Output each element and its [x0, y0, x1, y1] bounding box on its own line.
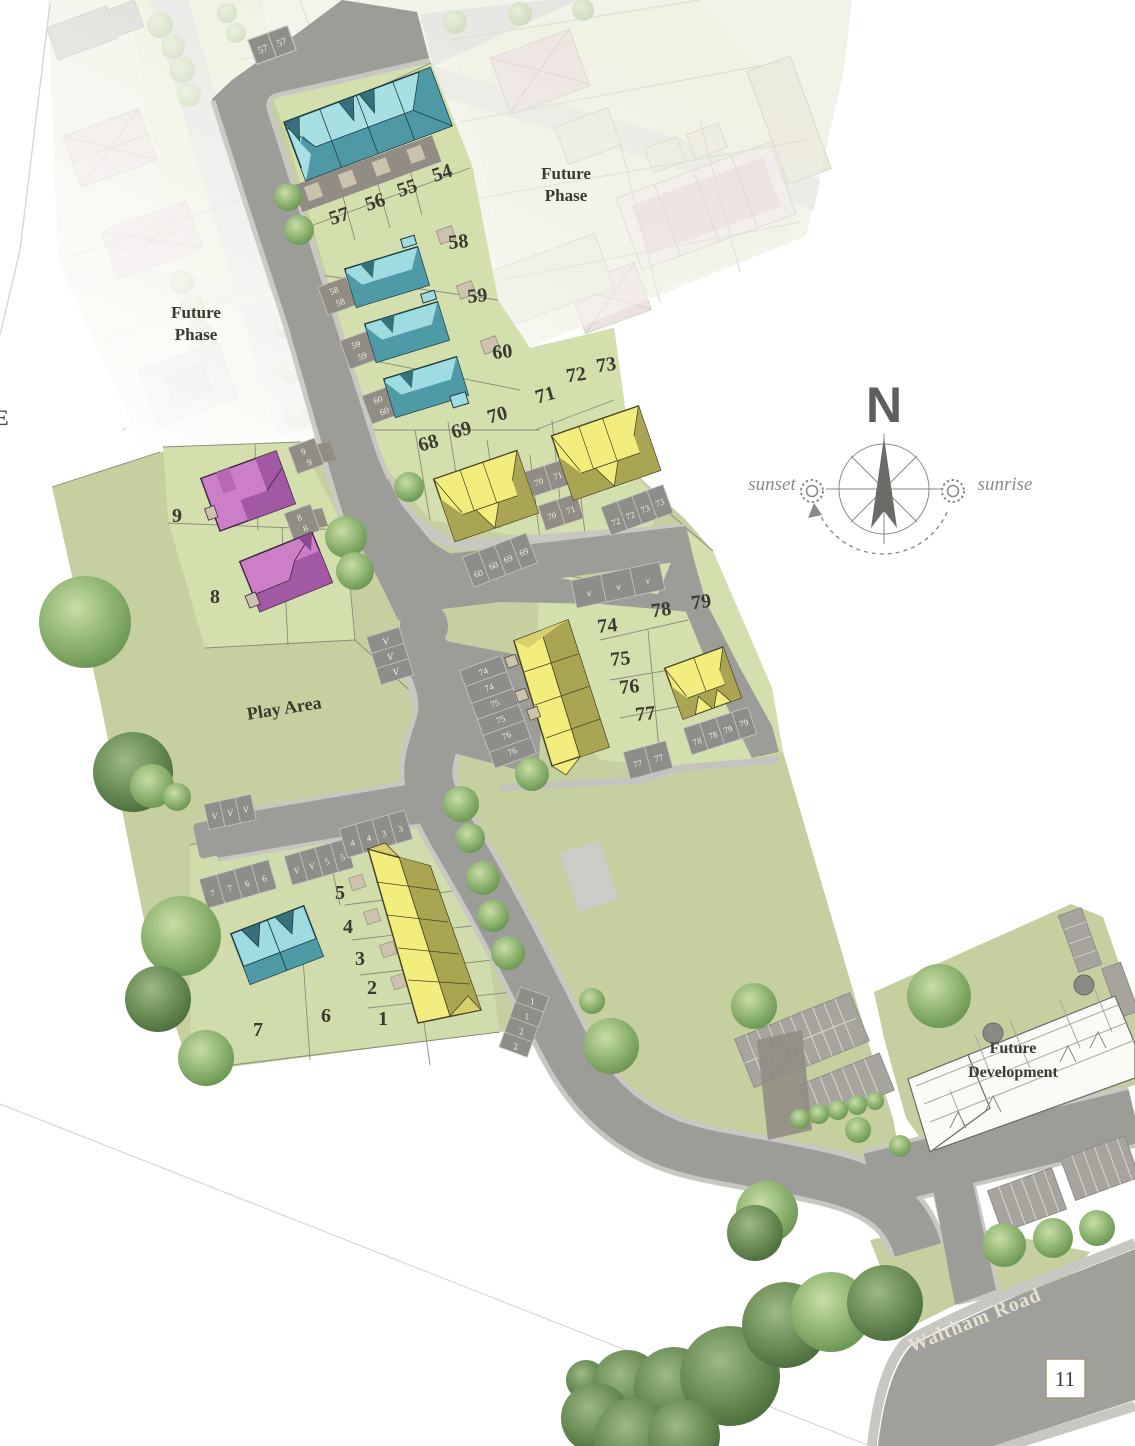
svg-text:74: 74 [596, 614, 618, 638]
svg-text:sunset: sunset [748, 474, 796, 495]
svg-text:1: 1 [524, 1011, 529, 1021]
svg-text:58: 58 [447, 230, 469, 254]
svg-text:78: 78 [650, 598, 673, 623]
svg-text:4: 4 [343, 916, 353, 938]
svg-text:2: 2 [519, 1027, 524, 1037]
svg-text:1: 1 [530, 996, 535, 1006]
svg-text:Phase: Phase [175, 325, 218, 344]
svg-text:76: 76 [618, 675, 640, 699]
svg-text:9: 9 [172, 505, 182, 527]
svg-text:60: 60 [491, 340, 513, 364]
svg-text:11: 11 [1055, 1367, 1075, 1391]
svg-text:3: 3 [355, 948, 365, 970]
svg-text:1: 1 [378, 1008, 388, 1030]
svg-text:59: 59 [466, 284, 488, 308]
svg-text:Future: Future [541, 164, 591, 183]
svg-text:2: 2 [514, 1042, 519, 1052]
svg-text:79: 79 [690, 590, 713, 615]
svg-text:75: 75 [609, 647, 631, 671]
svg-text:72: 72 [565, 363, 588, 388]
svg-text:77: 77 [634, 702, 656, 726]
svg-text:Development: Development [968, 1064, 1058, 1081]
svg-text:Future: Future [990, 1040, 1037, 1057]
svg-text:8: 8 [210, 586, 220, 608]
svg-text:5: 5 [335, 882, 345, 904]
svg-text:Future: Future [171, 303, 221, 322]
svg-text:7: 7 [253, 1019, 263, 1041]
svg-text:6: 6 [321, 1005, 331, 1027]
svg-text:E: E [0, 405, 9, 430]
svg-text:2: 2 [367, 977, 377, 999]
svg-text:73: 73 [595, 353, 618, 378]
svg-text:Phase: Phase [545, 186, 588, 205]
svg-text:N: N [866, 377, 902, 433]
svg-text:sunrise: sunrise [978, 474, 1033, 495]
